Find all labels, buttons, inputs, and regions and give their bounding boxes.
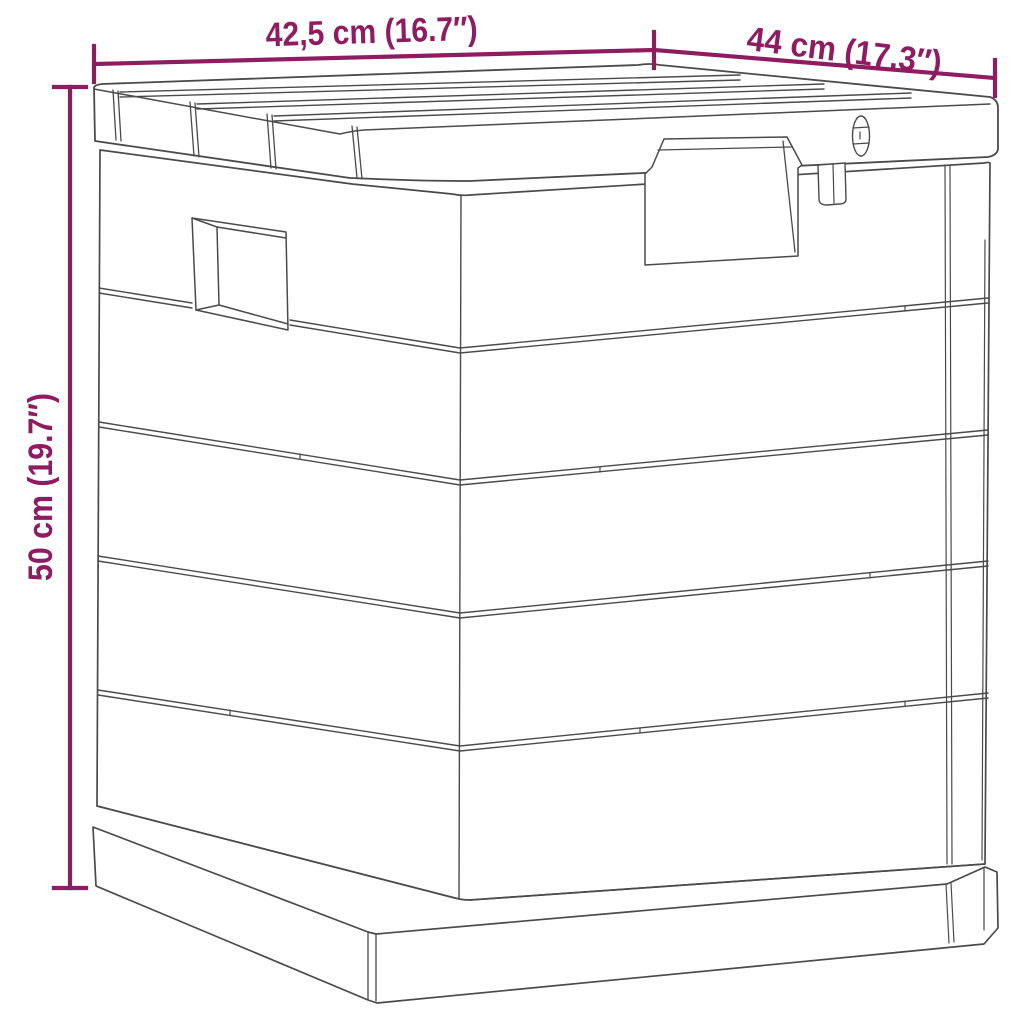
lock-keyhole-icon	[853, 116, 870, 156]
height-dimension-label: 50 cm (19.7″)	[22, 393, 60, 581]
storage-box-dimension-diagram: 42,5 cm (16.7″) 44 cm (17.3″) 50 cm (19.…	[0, 0, 1024, 1024]
depth-dimension-label: 44 cm (17.3″)	[745, 20, 944, 82]
storage-box-drawing	[93, 64, 998, 1003]
latch-tab	[818, 163, 846, 205]
latch-recess	[645, 137, 802, 265]
dimension-diagram-page: 42,5 cm (16.7″) 44 cm (17.3″) 50 cm (19.…	[0, 0, 1024, 1024]
width-dimension-label: 42,5 cm (16.7″)	[265, 10, 478, 55]
box-body	[97, 150, 990, 900]
